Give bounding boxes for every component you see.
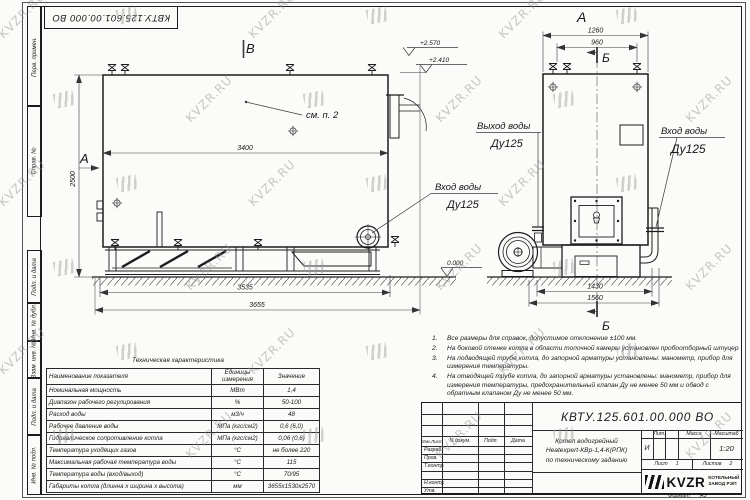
ground-hatch-left (92, 278, 456, 286)
stamp-podp-data-2: Подп. и дата (27, 377, 42, 436)
dim-3655: 3655 (249, 302, 265, 309)
view-mark-v: В (246, 41, 255, 56)
doc-number-box-rotated: КВТУ.125.601.00.000 ВО (44, 6, 178, 29)
table-row: Максимальная рабочая температура воды°С1… (47, 457, 320, 469)
front-base (562, 245, 640, 277)
inlet-flange (355, 224, 381, 250)
sig-tkontr: Т.контр. (422, 462, 444, 471)
scale-header: Масштаб (710, 430, 743, 438)
table-row: Габариты котла (длинна х ширина х высота… (47, 481, 320, 493)
elevation-0000: 0.000 (447, 260, 464, 267)
stamp-podp-data-1: Подп. и дата (27, 250, 42, 304)
kvzr-logo-icon (645, 475, 664, 489)
rev-col-izm-list: Изм.Лист (422, 436, 442, 446)
boiler-front-view (487, 58, 672, 301)
elevation-2570: +2.570 (420, 40, 440, 47)
spec-header-units: Единицы измерения (212, 369, 264, 385)
section-mark-a: А (79, 151, 89, 166)
grate-bars (122, 251, 226, 267)
product-name: Котел водогрейный Heatexpert-КВр-1,4-К(Р… (532, 430, 641, 472)
labels-side-view: В см. п. 2 3400 А 2500 +2.570 +2.410 0.0… (70, 40, 481, 309)
kvzr-logo-text: KVZR (667, 475, 706, 490)
lit-header: Лит. (641, 430, 678, 438)
ash-pan (292, 252, 371, 266)
stamp-inv-podl: Инв. № подл. (27, 434, 42, 495)
dim-960: 960 (591, 40, 603, 47)
mass-header: Масса (678, 430, 710, 438)
table-row: Гидравлическое сопротивление котлаМПа (к… (47, 433, 320, 445)
position-marks-front (548, 82, 642, 92)
boiler-side-view (92, 65, 456, 286)
sig-razrab: Разраб. (422, 446, 444, 454)
stamp-perv-primen: Перв. примен. (27, 6, 42, 107)
inspection-window (620, 125, 643, 145)
outlet-water-label: Выход воды (477, 121, 530, 132)
section-mark-b-bottom: Б (602, 319, 610, 333)
inlet-water-label: Вход воды (435, 182, 481, 193)
drawing-sheet: { "doc": { "number": "КВТУ.125.601.00.00… (0, 0, 750, 500)
inlet-water-dn: Ду125 (445, 199, 480, 211)
spec-header-name: Наименование показателя (47, 369, 212, 385)
lit-value: И (641, 438, 653, 459)
note-item: 4.На отводящей трубе котла, до запорной … (432, 373, 740, 398)
sig-nkontr: Н.контр. (422, 479, 444, 487)
spec-table: Техническая характеристика Наименование … (46, 357, 310, 493)
table-row: Рабочее давление водыМПа (кгс/см2)0,6 (6… (47, 421, 320, 433)
doc-number-rotated: КВТУ.125.601.00.000 ВО (52, 12, 170, 23)
format-label: Формат А3 (668, 493, 707, 499)
note-item: 2.На боковой стенке котла в области топо… (432, 345, 740, 353)
notes-block: 1.Все размеры для справок, допустимое от… (432, 335, 740, 400)
rev-col-podp: Подп. (478, 436, 504, 446)
valve-icons-front (549, 64, 641, 75)
dim-3535: 3535 (237, 285, 253, 292)
stamp-vzam-inv: Взам. инв. № (27, 340, 42, 379)
scale-value: 1:20 (710, 438, 743, 459)
see-note-label: см. п. 2 (306, 110, 339, 121)
dim-1560: 1560 (587, 295, 603, 302)
note-item: 1.Все размеры для справок, допустимое от… (432, 335, 740, 343)
dimensions-side-view (74, 40, 498, 315)
table-row: Расход водым3/ч48 (47, 409, 320, 421)
view-label-a: А (576, 9, 586, 25)
position-marks (112, 126, 298, 208)
table-row: Температура уходящих газов°Сне более 220 (47, 445, 320, 457)
elevation-2410: +2.410 (429, 57, 449, 64)
furnace-door (571, 197, 622, 244)
rev-col-data: Дата (504, 436, 532, 446)
inlet-pipe (640, 208, 664, 263)
rev-col-ndokum: N докум. (442, 436, 478, 446)
dim-3400: 3400 (237, 145, 253, 152)
inlet-water-dn-front: Ду125 (669, 142, 706, 156)
spec-table-title: Техническая характеристика (46, 357, 310, 368)
table-row: Температура воды (вход/выход)°С70/95 (47, 469, 320, 481)
valve-icons (108, 65, 399, 251)
stamp-sprav-n: Справ. № (27, 105, 42, 217)
kvzr-logo-subtitle: КОТЕЛЬНЫЙ ЗАВОД РЭП (708, 476, 739, 488)
table-row: Диапазон рабочего регулирования%50-100 (47, 397, 320, 409)
sig-prov: Пров. (422, 454, 444, 462)
company-logo: KVZR КОТЕЛЬНЫЙ ЗАВОД РЭП (641, 469, 743, 495)
doc-number: КВТУ.125.601.00.000 ВО (532, 403, 743, 430)
spec-header-value: Значение (264, 369, 320, 385)
dim-1260: 1260 (588, 28, 604, 35)
dim-2500: 2500 (70, 171, 77, 188)
dim-1430: 1430 (587, 284, 603, 291)
sig-utv: Утв. (422, 487, 444, 495)
outlet-water-dn: Ду125 (489, 138, 524, 150)
blower-fan (499, 233, 563, 277)
section-mark-b-top: Б (602, 51, 610, 65)
table-row: Номинальная мощностьМВт1,4 (47, 385, 320, 397)
ground-hatch-right (487, 278, 672, 286)
title-block: Изм.Лист N докум. Подп. Дата Разраб. Про… (421, 402, 742, 494)
sheets-cell: Листов2 (692, 459, 743, 469)
sheet-cell: Лист1 (641, 459, 692, 469)
inlet-water-label-front: Вход воды (661, 126, 707, 137)
stamp-inv-dubl: Инв. № дубл. (27, 302, 42, 342)
note-item: 3.На подводящей трубе котла, до запорной… (432, 355, 740, 372)
